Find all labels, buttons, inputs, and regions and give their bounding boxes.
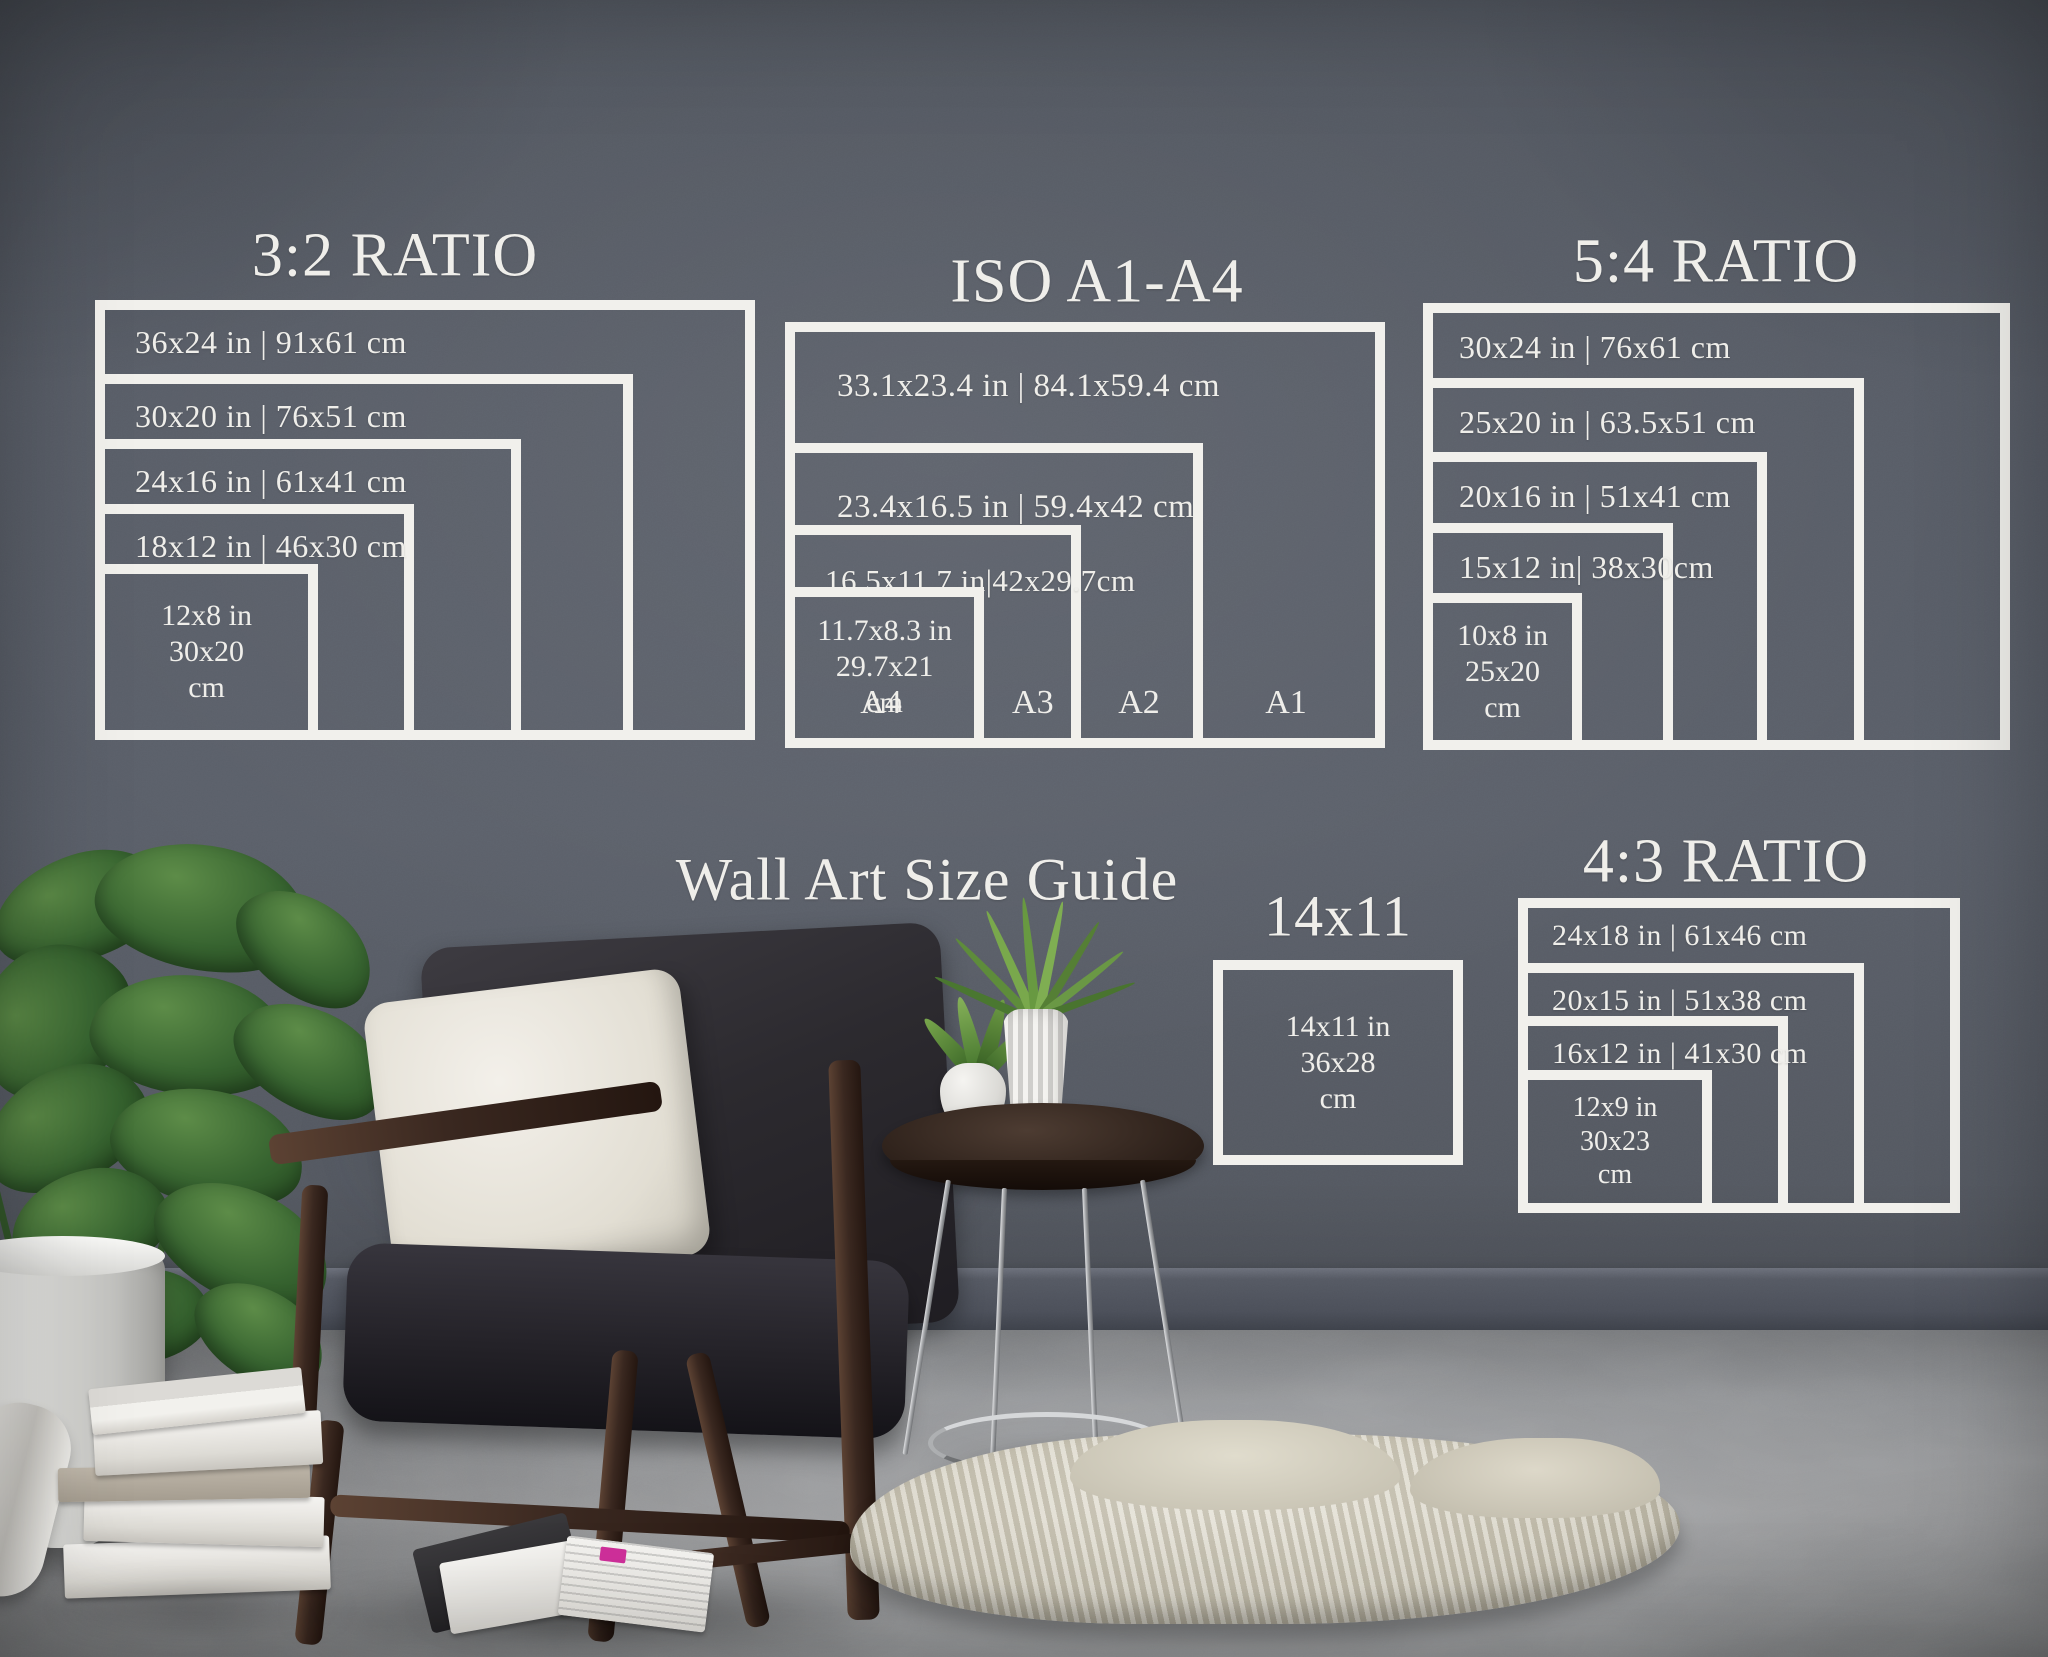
frame-label-line: cm	[1484, 690, 1521, 726]
group-title-3-2-ratio: 3:2 RATIO	[252, 221, 538, 292]
frame-10x8: 10x8 in 25x20 cm	[1423, 593, 1582, 750]
frame-label-multiline: 10x8 in 25x20 cm	[1439, 609, 1566, 734]
frame-label: 15x12 in| 38x30cm	[1459, 549, 1714, 586]
frame-12x9: 12x9 in 30x23 cm	[1518, 1070, 1712, 1213]
size-guide-overlay: Wall Art Size Guide 3:2 RATIO 36x24 in |…	[0, 0, 2048, 1657]
group-title-4-3-ratio: 4:3 RATIO	[1583, 827, 1869, 898]
size-group-14x11: 14x11 in 36x28 cm	[1213, 960, 1463, 1165]
frame-label: 30x20 in | 76x51 cm	[135, 398, 407, 435]
frame-label-line: 11.7x8.3 in	[817, 613, 952, 649]
paper-size-label-a2: A2	[1118, 684, 1160, 722]
paper-size-label-a4: A4	[860, 684, 902, 722]
frame-label: 25x20 in | 63.5x51 cm	[1459, 404, 1756, 441]
frame-label-multiline: 12x9 in 30x23 cm	[1534, 1086, 1696, 1197]
group-title-iso: ISO A1-A4	[950, 247, 1243, 318]
frame-label-line: 36x28	[1301, 1045, 1376, 1081]
frame-label-line: 29.7x21	[836, 649, 934, 685]
frame-label-line: cm	[1598, 1158, 1632, 1192]
frame-label: 20x15 in | 51x38 cm	[1552, 984, 1808, 1018]
wall-art-size-guide-scene: Wall Art Size Guide 3:2 RATIO 36x24 in |…	[0, 0, 2048, 1657]
size-group-iso-a1-a4: 33.1x23.4 in | 84.1x59.4 cm 23.4x16.5 in…	[785, 322, 1385, 748]
frame-label: 18x12 in | 46x30 cm	[135, 528, 407, 565]
frame-label: 33.1x23.4 in | 84.1x59.4 cm	[837, 368, 1220, 405]
frame-label-line: 12x8 in	[161, 598, 252, 634]
frame-label: 36x24 in | 91x61 cm	[135, 324, 407, 361]
size-group-5-4-ratio: 30x24 in | 76x61 cm 25x20 in | 63.5x51 c…	[1423, 303, 2010, 750]
frame-label: 20x16 in | 51x41 cm	[1459, 478, 1731, 515]
frame-label-multiline: 12x8 in 30x20 cm	[111, 580, 302, 724]
group-title-14x11: 14x11	[1264, 883, 1412, 950]
frame-label: 30x24 in | 76x61 cm	[1459, 329, 1731, 366]
frame-label-line: 30x20	[169, 634, 244, 670]
frame-label-line: 25x20	[1465, 654, 1540, 690]
frame-12x8: 12x8 in 30x20 cm	[95, 564, 318, 740]
frame-14x11: 14x11 in 36x28 cm	[1213, 960, 1463, 1165]
size-group-4-3-ratio: 24x18 in | 61x46 cm 20x15 in | 51x38 cm …	[1518, 898, 1960, 1213]
frame-label-line: 10x8 in	[1457, 618, 1548, 654]
frame-label-line: cm	[188, 670, 225, 706]
frame-label-multiline: 14x11 in 36x28 cm	[1229, 976, 1447, 1149]
frame-label-line: cm	[1320, 1081, 1357, 1117]
frame-label-line: 30x23	[1580, 1125, 1650, 1159]
frame-label-line: 12x9 in	[1573, 1091, 1658, 1125]
frame-label: 24x16 in | 61x41 cm	[135, 463, 407, 500]
main-title: Wall Art Size Guide	[676, 846, 1178, 915]
frame-label-line: 14x11 in	[1286, 1009, 1391, 1045]
size-group-3-2-ratio: 36x24 in | 91x61 cm 30x20 in | 76x51 cm …	[95, 300, 755, 740]
frame-label: 23.4x16.5 in | 59.4x42 cm	[837, 489, 1194, 526]
frame-label: 24x18 in | 61x46 cm	[1552, 919, 1808, 953]
frame-a4: 11.7x8.3 in 29.7x21 cm	[785, 587, 984, 748]
group-title-5-4-ratio: 5:4 RATIO	[1573, 227, 1859, 298]
paper-size-label-a1: A1	[1265, 684, 1307, 722]
frame-label: 16x12 in | 41x30 cm	[1552, 1037, 1808, 1071]
paper-size-label-a3: A3	[1012, 684, 1054, 722]
